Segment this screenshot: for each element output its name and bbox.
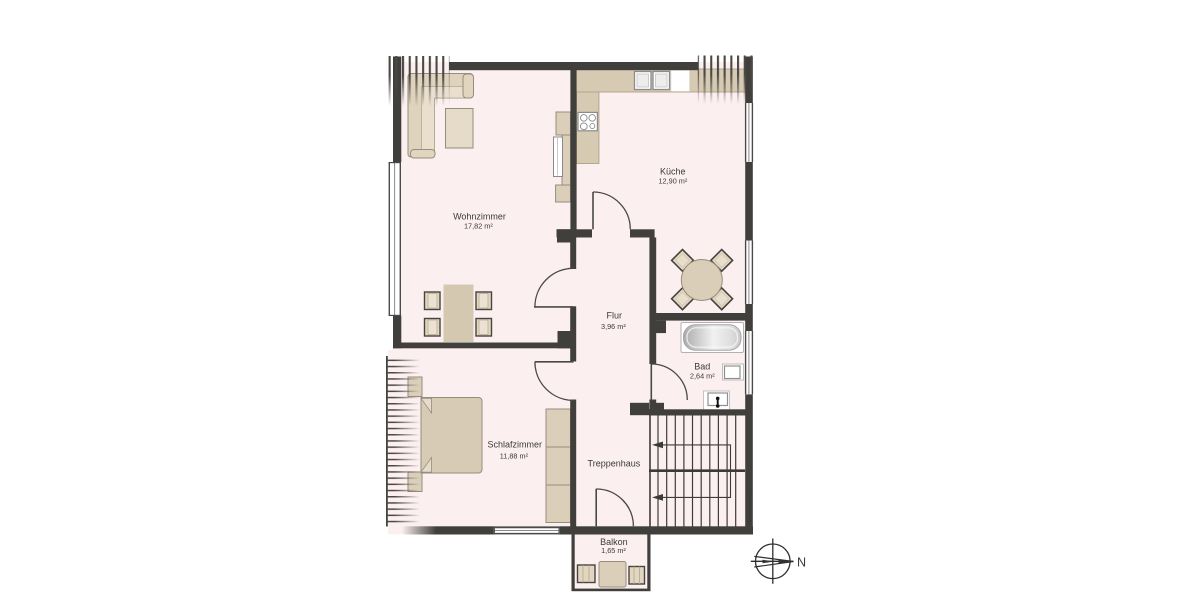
svg-text:Flur: Flur	[607, 311, 623, 321]
svg-text:11,88 m²: 11,88 m²	[500, 451, 529, 460]
svg-text:12,90 m²: 12,90 m²	[659, 177, 688, 186]
svg-text:Treppenhaus: Treppenhaus	[588, 459, 641, 469]
svg-text:Bad: Bad	[694, 361, 710, 371]
svg-text:Wohnzimmer: Wohnzimmer	[453, 212, 506, 222]
svg-text:17,82 m²: 17,82 m²	[464, 221, 493, 230]
svg-text:Schlafzimmer: Schlafzimmer	[488, 439, 543, 449]
svg-text:2,64 m²: 2,64 m²	[690, 372, 715, 381]
svg-text:1,65 m²: 1,65 m²	[601, 546, 626, 555]
svg-text:Küche: Küche	[660, 167, 686, 177]
svg-text:3,96 m²: 3,96 m²	[601, 322, 626, 331]
svg-text:N: N	[797, 555, 806, 569]
svg-text:McGrundriss: McGrundriss	[747, 494, 753, 522]
